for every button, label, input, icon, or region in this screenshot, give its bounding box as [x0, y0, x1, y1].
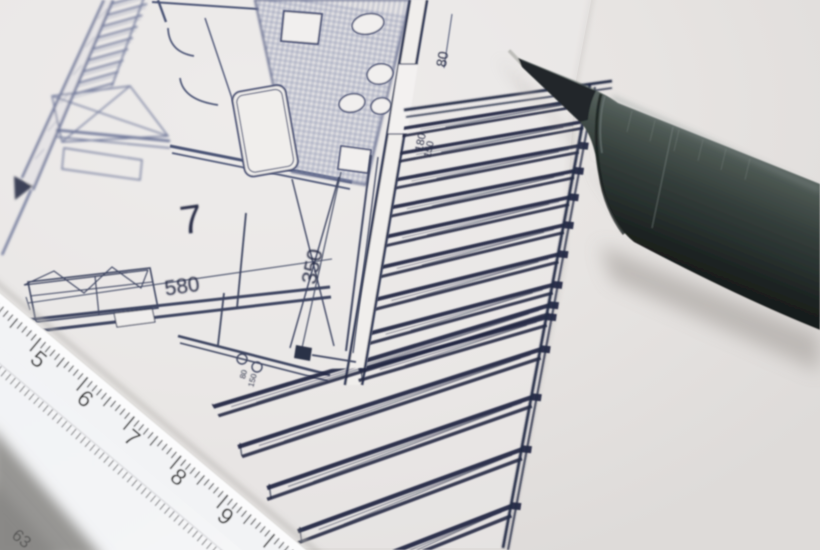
svg-text:80: 80: [433, 50, 451, 68]
svg-text:580: 580: [163, 273, 201, 301]
